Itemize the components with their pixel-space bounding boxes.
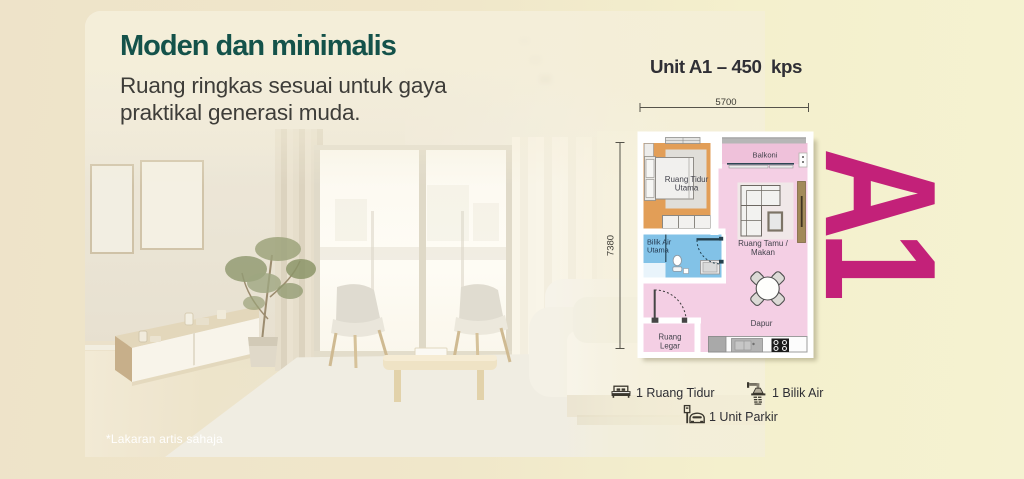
svg-text:Balkoni: Balkoni	[753, 151, 778, 160]
svg-text:5700: 5700	[715, 97, 736, 108]
svg-text:Legar: Legar	[660, 342, 680, 351]
svg-text:Ruang Tamu /: Ruang Tamu /	[738, 239, 788, 248]
svg-text:7380: 7380	[606, 235, 617, 256]
svg-text:Makan: Makan	[751, 248, 775, 257]
svg-text:Utama: Utama	[675, 184, 699, 193]
svg-text:Dapur: Dapur	[751, 319, 773, 328]
svg-text:Ruang: Ruang	[659, 333, 682, 342]
